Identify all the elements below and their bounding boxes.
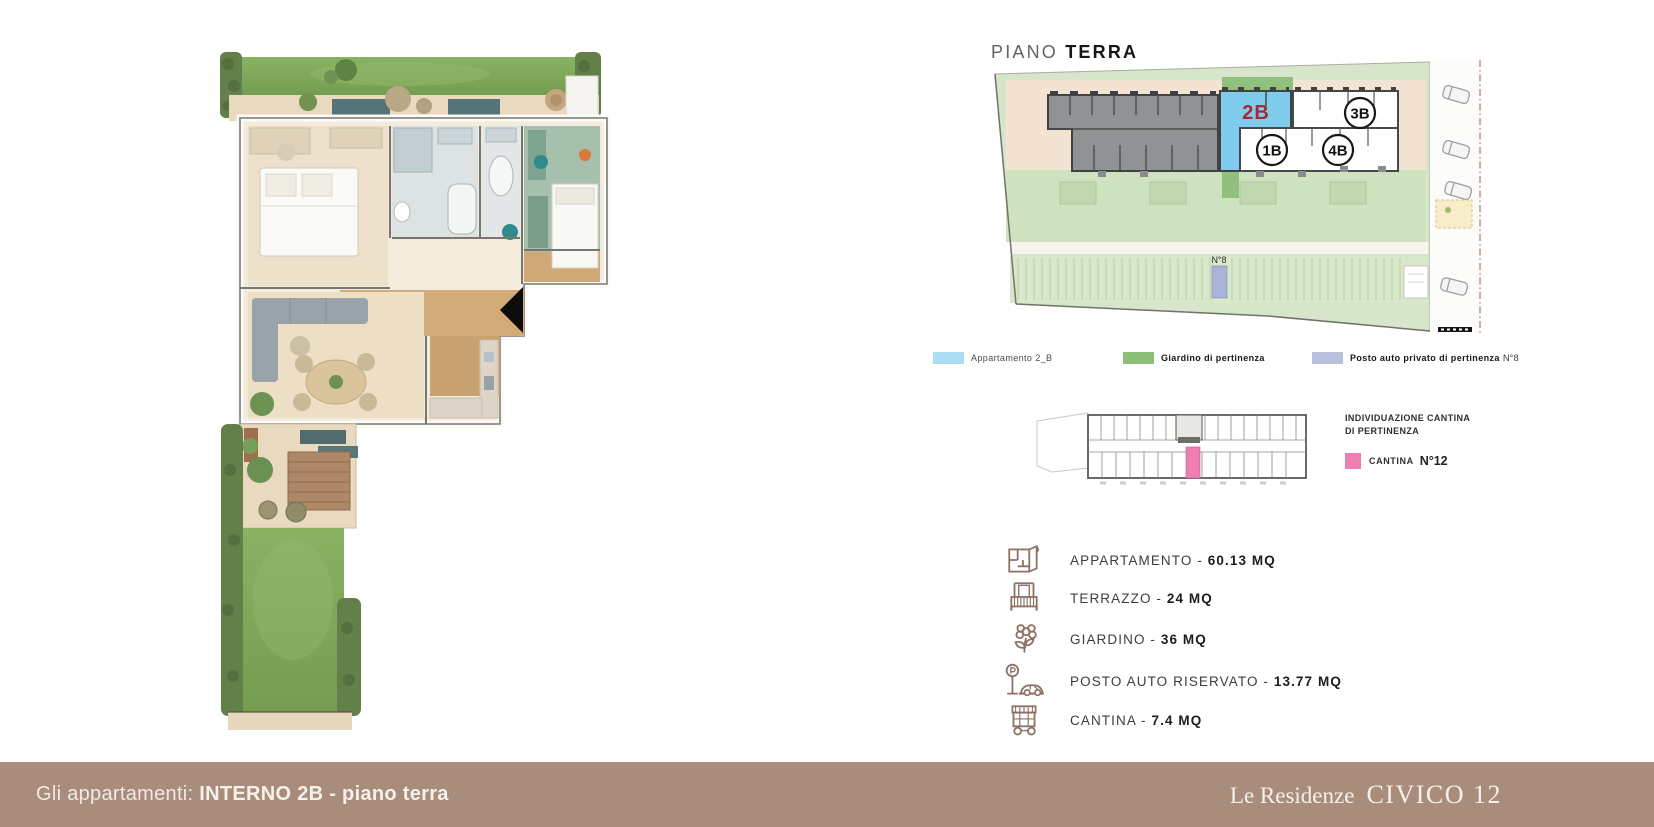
footer-caption-title: INTERNO 2B - piano terra	[199, 783, 448, 805]
cantina-label: CANTINA	[1369, 456, 1414, 466]
garden-icon	[1003, 620, 1045, 658]
building-gray-units	[1048, 93, 1218, 171]
garden-strip-bottom	[1222, 171, 1239, 198]
legend-apartment-swatch	[933, 352, 964, 364]
cantina-heading-line1: INDIVIDUAZIONE CANTINA	[1345, 412, 1470, 425]
spec-garden-value: 36 MQ	[1161, 632, 1207, 647]
site-plan: N°8 2B	[940, 55, 1490, 340]
unit-3b-label: 3B	[1350, 106, 1369, 123]
brochure-page: PIANO TERRA N°8	[0, 0, 1654, 827]
parking-area: N°8	[1010, 255, 1428, 303]
cantina-number: N°12	[1420, 454, 1448, 468]
cantina-heading: INDIVIDUAZIONE CANTINA DI PERTINENZA	[1345, 412, 1470, 438]
parking-icon	[1003, 662, 1045, 700]
footer-bar: Gli appartamenti: INTERNO 2B - piano ter…	[0, 762, 1654, 827]
spec-apartment-label: APPARTAMENTO -	[1070, 553, 1208, 568]
cantina-swatch	[1345, 453, 1361, 469]
footer-caption: Gli appartamenti: INTERNO 2B - piano ter…	[36, 783, 449, 806]
unit-1b-label: 1B	[1262, 143, 1281, 160]
spec-terrace-value: 24 MQ	[1167, 591, 1213, 606]
legend-parking-label: Posto auto privato di pertinenza	[1350, 353, 1500, 363]
legend-parking-number: N°8	[1503, 353, 1519, 364]
spec-apartment: APPARTAMENTO - 60.13 MQ	[1003, 541, 1276, 579]
floorplan-icon	[1003, 541, 1045, 579]
parking-spot-8	[1212, 266, 1227, 298]
legend-apartment-label: Appartamento 2_B	[971, 353, 1052, 363]
spec-garden: GIARDINO - 36 MQ	[1003, 620, 1207, 658]
legend-parking: Posto auto privato di pertinenza N°8	[1312, 351, 1519, 365]
brand-logo: Le Residenze CIVICO 12	[1230, 780, 1502, 810]
brand-residenze: Le Residenze	[1230, 783, 1355, 809]
unit-2b-label: 2B	[1242, 102, 1270, 124]
spec-parking: POSTO AUTO RISERVATO - 13.77 MQ	[1003, 662, 1342, 700]
terrace-bottom	[240, 424, 358, 528]
spec-garden-label: GIARDINO -	[1070, 632, 1161, 647]
legend-apartment: Appartamento 2_B	[933, 351, 1052, 365]
apartment-floorplan	[200, 45, 620, 740]
site-structure	[1436, 200, 1472, 228]
parking-spot-label: N°8	[1211, 255, 1226, 265]
legend-garden-label: Giardino di pertinenza	[1161, 353, 1265, 363]
spec-parking-value: 13.77 MQ	[1274, 674, 1342, 689]
spec-terrace: TERRAZZO - 24 MQ	[1003, 579, 1213, 617]
pergola-table	[288, 452, 350, 510]
legend-parking-swatch	[1312, 352, 1343, 364]
cantina-heading-line2: DI PERTINENZA	[1345, 425, 1470, 438]
scale-bar	[1438, 327, 1472, 332]
site-gardens	[1006, 170, 1426, 242]
terrace-icon	[1003, 579, 1045, 617]
hedge-bottom-left	[221, 424, 243, 716]
footer-caption-prefix: Gli appartamenti:	[36, 783, 199, 805]
brand-civico: CIVICO 12	[1366, 780, 1502, 810]
legend-garden: Giardino di pertinenza	[1123, 351, 1265, 365]
spec-apartment-value: 60.13 MQ	[1208, 553, 1276, 568]
spec-cellar: CANTINA - 7.4 MQ	[1003, 701, 1202, 739]
dining-table	[293, 353, 377, 411]
spec-parking-label: POSTO AUTO RISERVATO -	[1070, 674, 1274, 689]
spec-cellar-value: 7.4 MQ	[1152, 713, 1203, 728]
cantina-unit-12	[1186, 447, 1200, 478]
garden-edge	[228, 712, 352, 730]
legend-garden-swatch	[1123, 352, 1154, 364]
site-walkway	[1010, 242, 1428, 254]
spec-cellar-label: CANTINA -	[1070, 713, 1152, 728]
cantina-legend: CANTINA N°12	[1345, 453, 1448, 469]
spec-terrace-label: TERRAZZO -	[1070, 591, 1167, 606]
cellar-icon	[1003, 701, 1045, 739]
unit-4b-label: 4B	[1328, 143, 1347, 160]
bed-double	[260, 168, 358, 256]
hedge-bottom-right	[337, 598, 361, 716]
